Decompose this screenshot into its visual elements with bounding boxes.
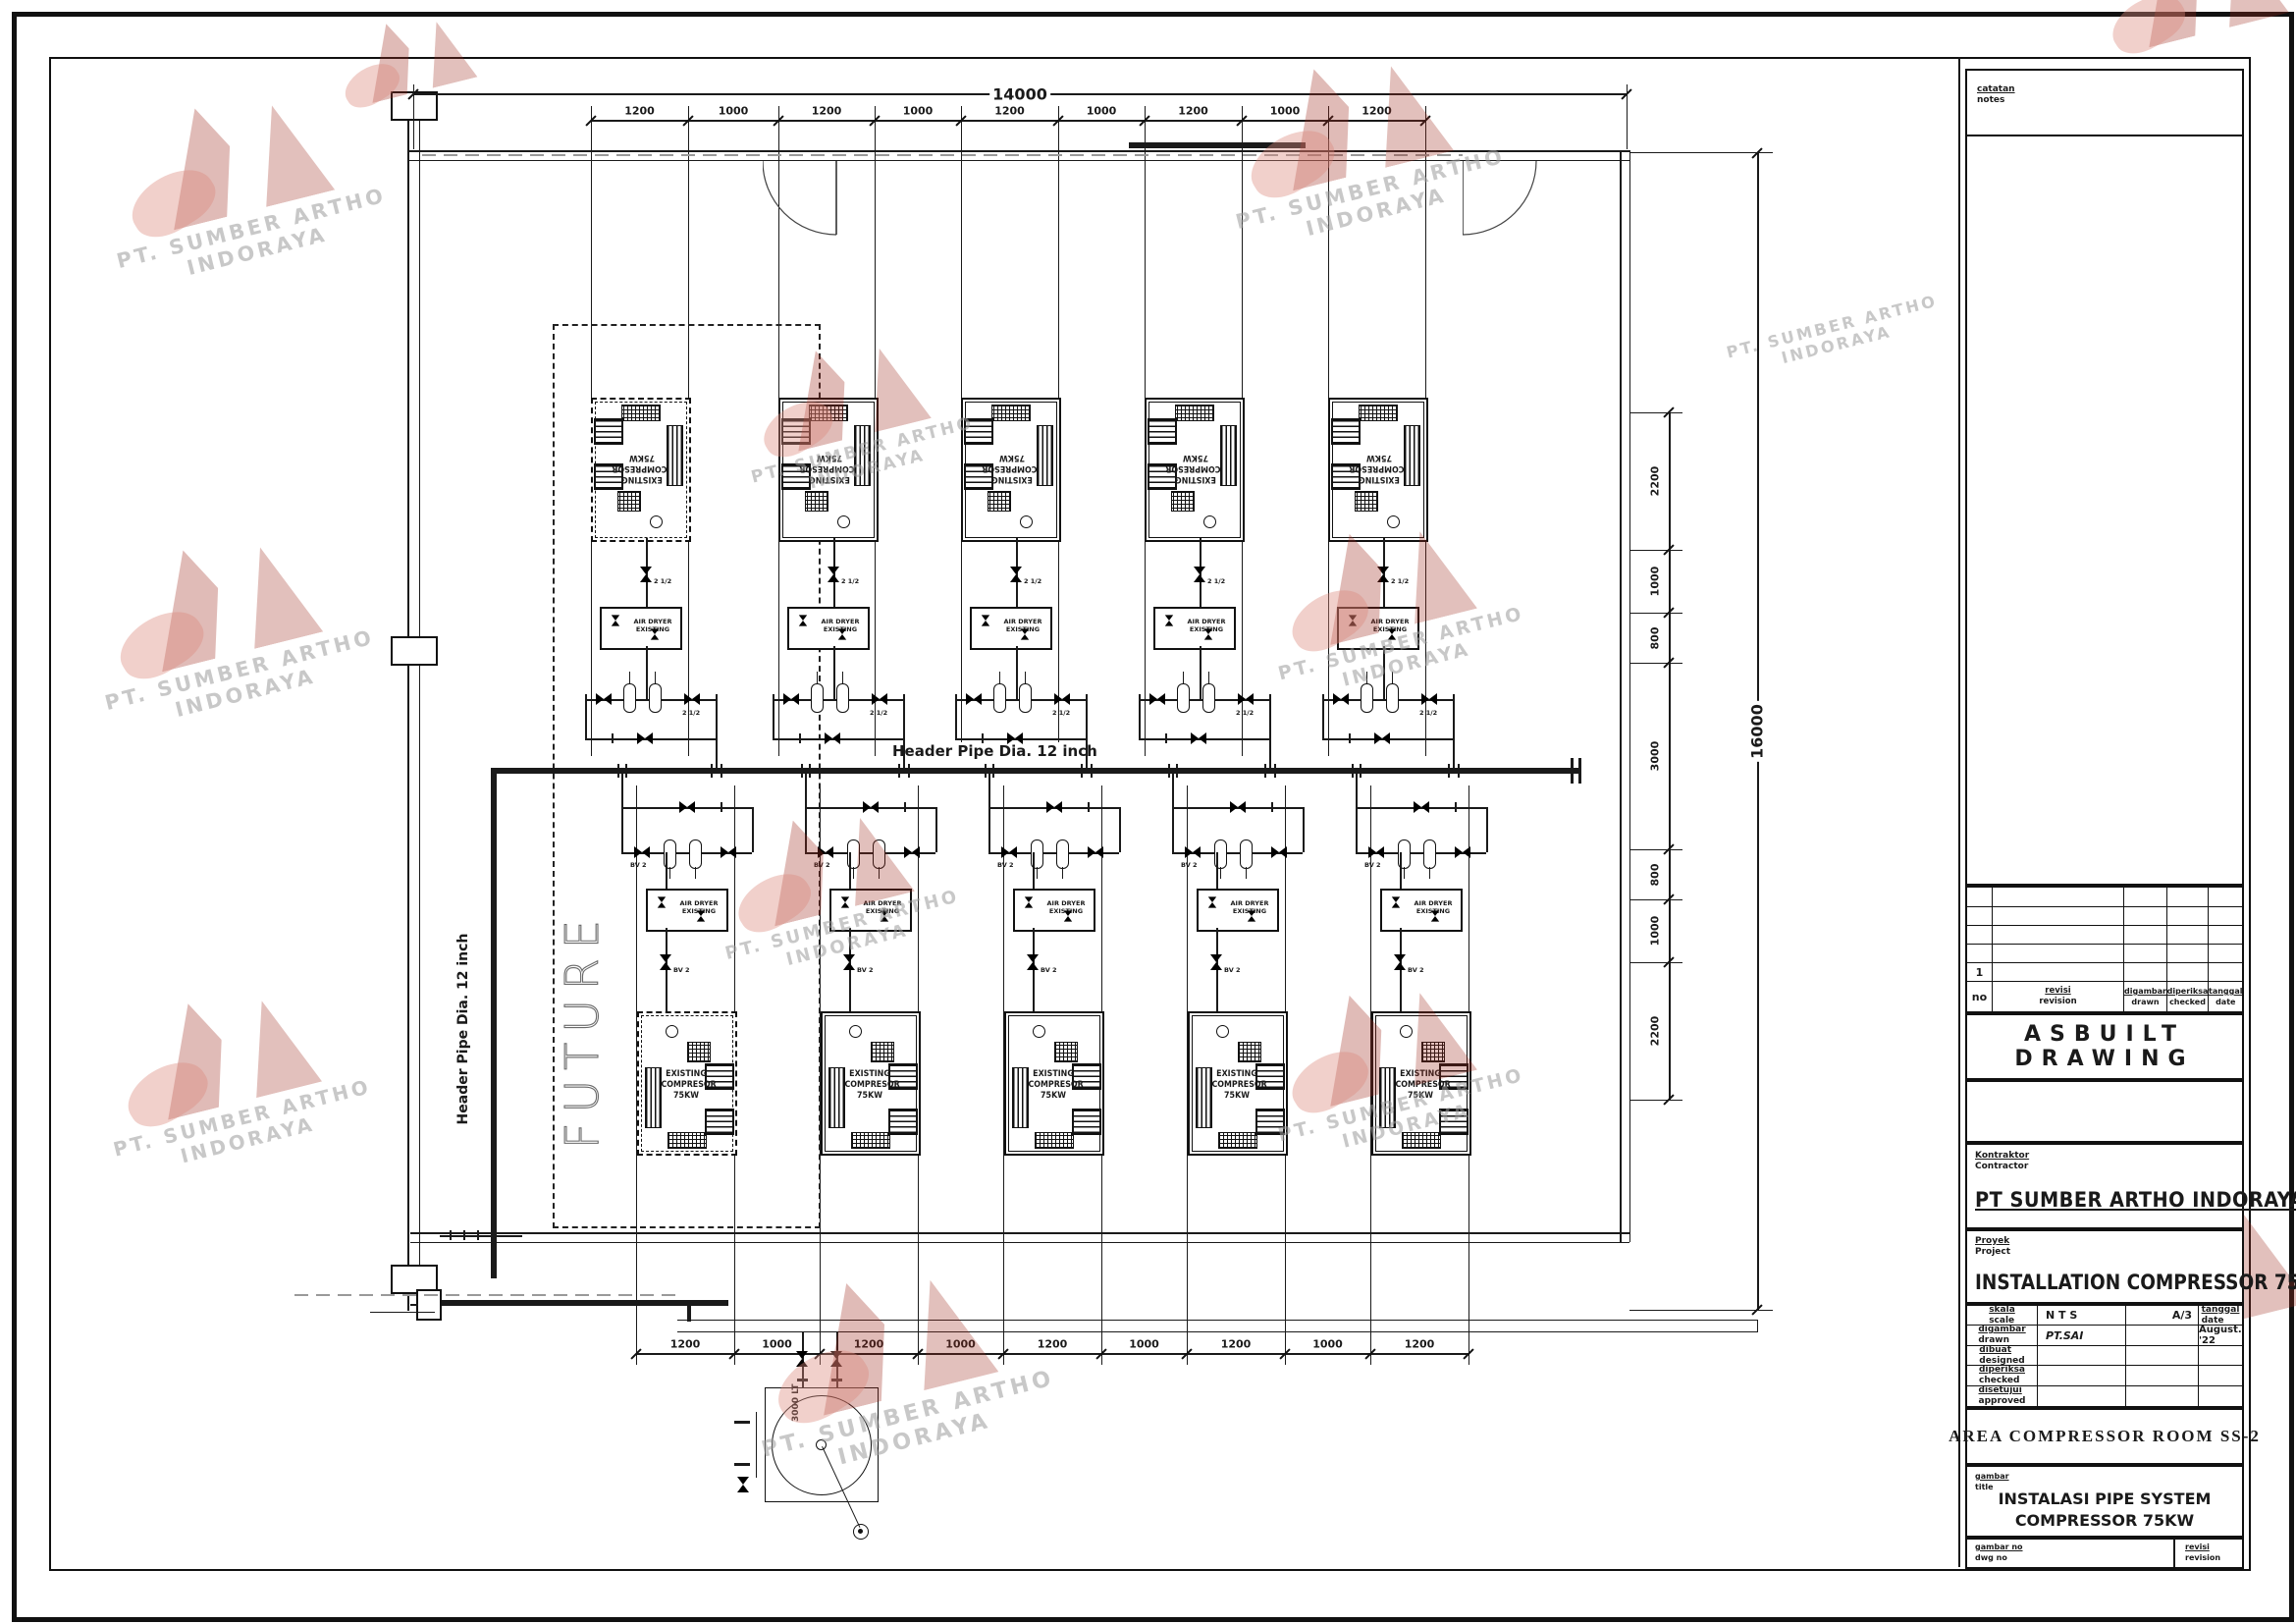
compressor-label: EXISTINGCOMPRESOR75KW — [1354, 452, 1404, 484]
valve-icon — [1238, 693, 1254, 705]
compressor-port-icon — [1020, 515, 1033, 528]
flange-tick — [721, 764, 722, 778]
watermark-text: INDORAYA — [62, 637, 429, 750]
pipe-line — [1183, 672, 1184, 683]
pipe-size-label: BV 2 — [1181, 861, 1198, 869]
flange-tick — [1091, 764, 1093, 778]
logo-shape — [395, 16, 478, 94]
filter-icon — [649, 683, 662, 713]
air-dryer-box: AIR DRYEREXISTING — [600, 607, 682, 650]
vent-hatch-icon — [1379, 1067, 1396, 1128]
compressor-inner-frame: EXISTINGCOMPRESOR75KW — [965, 402, 1057, 538]
valve-icon — [1208, 896, 1216, 907]
brand-logo-icon — [115, 520, 330, 681]
flange-tick — [612, 733, 614, 743]
air-dryer-box: AIR DRYEREXISTING — [787, 607, 870, 650]
watermark-logo: PT. SUMBER ARTHOINDORAYA — [1688, 283, 1980, 390]
wall-line — [410, 1232, 1629, 1234]
valve-icon — [660, 954, 671, 970]
filter-icon — [1202, 683, 1215, 713]
valve-icon — [1271, 846, 1287, 858]
overall-height-dim: 16000 — [1748, 701, 1767, 762]
pipe-line — [1062, 867, 1063, 879]
valve-icon — [1210, 954, 1222, 970]
flange-tick — [799, 733, 801, 743]
valve-icon — [841, 896, 849, 907]
info-grid-box: skalascale N T S A/3 tanggaldate digamba… — [1965, 1304, 2244, 1408]
watermark-text: INDORAYA — [74, 195, 441, 308]
compressor-port-icon — [837, 515, 850, 528]
pipe-line — [805, 807, 807, 852]
pipe-size-label: 2 1/2 — [1052, 709, 1070, 717]
pipe-line — [752, 807, 754, 852]
pipe-line — [1220, 867, 1221, 879]
vent-hatch-icon — [805, 491, 828, 512]
contractor-box: Kontraktor Contractor PT SUMBER ARTHO IN… — [1965, 1143, 2244, 1229]
pipe-line — [1119, 807, 1121, 852]
dim-label: 1200 — [991, 105, 1028, 118]
valve-icon — [783, 693, 799, 705]
vent-hatch-icon — [687, 1042, 711, 1062]
flange-tick — [721, 802, 722, 812]
flange-tick — [908, 764, 910, 778]
flange-tick — [625, 764, 627, 778]
pipe-size-label: BV 2 — [1408, 966, 1424, 974]
pipe-line — [621, 774, 623, 807]
dim-ext — [1629, 663, 1682, 664]
filter-icon — [993, 683, 1006, 713]
pipe-line — [1400, 928, 1402, 1016]
compressor-unit: EXISTINGCOMPRESOR75KW — [1004, 1011, 1104, 1156]
pipe-line — [669, 867, 670, 879]
dim-label: 1200 — [851, 1338, 887, 1351]
pipe-line — [1246, 867, 1247, 879]
watermark-text: INDORAYA — [73, 1087, 424, 1195]
louver-icon — [964, 418, 993, 445]
pipe-size-label: BV 2 — [1224, 966, 1241, 974]
compressor-inner-frame: EXISTINGCOMPRESOR75KW — [825, 1015, 917, 1152]
filter-icon — [1240, 839, 1253, 869]
pipe-line — [1025, 672, 1026, 683]
flange-tick — [1455, 802, 1457, 812]
flange-tick — [992, 764, 994, 778]
vent-hatch-icon — [1037, 425, 1053, 486]
pipe-line — [1086, 738, 1088, 770]
pipe-line — [1200, 646, 1201, 699]
logo-shape — [121, 156, 224, 248]
valve-icon — [658, 896, 666, 907]
louver-icon — [1148, 418, 1177, 445]
dim-line — [636, 1353, 1468, 1355]
dim-label: 1200 — [1035, 1338, 1071, 1351]
flange-tick — [1081, 764, 1083, 778]
valve-icon — [904, 846, 920, 858]
air-dryer-box: AIR DRYEREXISTING — [1337, 607, 1419, 650]
pipe-channel — [677, 1320, 1757, 1321]
vent-hatch-icon — [871, 1042, 894, 1062]
valve-icon — [596, 693, 612, 705]
pipe-line — [833, 646, 835, 699]
logo-shape — [1282, 1039, 1376, 1123]
air-dryer-box: AIR DRYEREXISTING — [1197, 889, 1279, 932]
logo-shape — [134, 532, 283, 672]
revision-cell-label: revisi revision — [2185, 1542, 2220, 1563]
pipe-line — [1269, 738, 1271, 770]
asbuilt-box: ASBUILT DRAWING — [1965, 1013, 2244, 1080]
vent-hatch-icon — [854, 425, 871, 486]
flange-tick — [1458, 764, 1460, 778]
valve-icon — [1421, 693, 1437, 705]
pipe-size-label: 2 1/2 — [841, 577, 859, 585]
flange-tick — [809, 764, 811, 778]
pipe-line — [1216, 852, 1218, 889]
filter-icon — [1177, 683, 1190, 713]
pipe-line — [1016, 646, 1018, 699]
vertical-header-pipe — [491, 771, 497, 1278]
valve-icon — [1377, 567, 1389, 582]
wall-line — [407, 160, 1629, 161]
pipe-line — [410, 1304, 418, 1306]
asbuilt-title: ASBUILT DRAWING — [1967, 1022, 2242, 1071]
dim-label: 1000 — [1267, 105, 1304, 118]
valve-icon — [612, 615, 619, 625]
logo-shape — [146, 90, 294, 230]
dim-label: 1200 — [1359, 105, 1395, 118]
valve-icon — [881, 910, 888, 921]
pipe-line — [695, 867, 696, 879]
dim-ext — [1629, 412, 1682, 413]
valve-icon — [737, 1477, 749, 1492]
wall-line — [1620, 150, 1622, 1242]
air-dryer-box: AIR DRYEREXISTING — [970, 607, 1052, 650]
dim-label: 1000 — [759, 1338, 795, 1351]
valve-icon — [1021, 628, 1029, 639]
compressor-unit: EXISTINGCOMPRESOR75KW — [637, 1011, 737, 1156]
pipe-line — [1356, 774, 1358, 807]
pipe-line — [1429, 867, 1430, 879]
valve-icon — [1027, 954, 1039, 970]
compressor-unit: EXISTINGCOMPRESOR75KW — [591, 398, 691, 542]
flange-tick — [1271, 802, 1273, 812]
pipe-line — [988, 807, 990, 852]
dwg-no-label: gambar no dwg no — [1975, 1542, 2023, 1563]
valve-icon — [1349, 615, 1357, 625]
pipe-size-label: 2 1/2 — [870, 709, 887, 717]
project-name: INSTALLATION COMPRESSOR 75KW — [1975, 1271, 2296, 1294]
pipe-line — [687, 1306, 691, 1322]
dim-label: 3000 — [1649, 738, 1662, 775]
air-dryer-box: AIR DRYEREXISTING — [1013, 889, 1095, 932]
valve-icon — [843, 954, 855, 970]
pipe-size-label: BV 2 — [857, 966, 874, 974]
flange-tick — [1176, 764, 1178, 778]
project-label: Proyek Project — [1975, 1236, 2010, 1258]
pipe-line — [1392, 672, 1393, 683]
air-dryer-box: AIR DRYEREXISTING — [829, 889, 912, 932]
vent-hatch-icon — [667, 425, 683, 486]
valve-icon — [825, 732, 840, 744]
drain-symbol-icon — [858, 1529, 863, 1534]
dim-ext — [1629, 962, 1682, 963]
pipe-line — [1086, 699, 1088, 738]
louver-icon — [1331, 418, 1361, 445]
valve-icon — [1204, 628, 1212, 639]
flange-tick — [801, 764, 803, 778]
pipe-line — [1383, 646, 1385, 699]
compressor-label: EXISTINGCOMPRESOR75KW — [804, 452, 854, 484]
flange-tick — [734, 1421, 750, 1424]
vent-hatch-icon — [1012, 1067, 1029, 1128]
compressor-unit: EXISTINGCOMPRESOR75KW — [1328, 398, 1428, 542]
air-dryer-box: AIR DRYEREXISTING — [1153, 607, 1236, 650]
pipe-line — [1486, 807, 1488, 852]
valve-icon — [1185, 846, 1201, 858]
louver-icon — [888, 1109, 918, 1135]
valve-icon — [697, 910, 705, 921]
compressor-unit: EXISTINGCOMPRESOR75KW — [778, 398, 879, 542]
notes-box: catatan notes — [1965, 69, 2244, 886]
valve-icon — [1455, 846, 1470, 858]
rev-col-revision: revisirevision — [1993, 981, 2124, 1011]
pipe-line — [1453, 738, 1455, 770]
louver-icon — [1255, 1109, 1285, 1135]
compressor-label: EXISTINGCOMPRESOR75KW — [1170, 452, 1220, 484]
compressor-unit: EXISTINGCOMPRESOR75KW — [821, 1011, 921, 1156]
dim-label: 1200 — [621, 105, 658, 118]
vent-hatch-icon — [1238, 1042, 1261, 1062]
dim-ext — [413, 84, 414, 149]
compressor-inner-frame: EXISTINGCOMPRESOR75KW — [1148, 402, 1241, 538]
valve-icon — [1054, 693, 1070, 705]
pipe-line — [646, 646, 648, 699]
logo-shape — [2125, 0, 2254, 47]
filter-icon — [1423, 839, 1436, 869]
flange-tick — [1264, 764, 1266, 778]
watermark-logo: PT. SUMBER ARTHOINDORAYA — [39, 954, 423, 1195]
vertical-header-pipe-label: Header Pipe Dia. 12 inch — [455, 917, 471, 1141]
valve-icon — [1191, 732, 1206, 744]
pipe-line — [629, 672, 630, 683]
tank-nozzle — [756, 1412, 757, 1478]
pipe-line — [805, 774, 807, 807]
valve-icon — [872, 693, 887, 705]
pipe-channel — [677, 1331, 1757, 1332]
vent-hatch-icon — [991, 405, 1031, 421]
area-title: AREA COMPRESSOR ROOM SS-2 — [1949, 1427, 2261, 1446]
pipe-size-label: 2 1/2 — [1236, 709, 1254, 717]
filter-icon — [1019, 683, 1032, 713]
dim-label: 1000 — [1309, 1338, 1346, 1351]
logo-shape — [118, 1050, 217, 1138]
valve-icon — [651, 628, 659, 639]
rev-col-no: no — [1967, 981, 1993, 1011]
filter-icon — [873, 839, 885, 869]
pipe-line — [903, 699, 905, 738]
valve-icon — [637, 732, 653, 744]
logo-shape — [207, 95, 335, 215]
pipe-size-label: 2 1/2 — [1419, 709, 1437, 717]
pipe-line — [1033, 852, 1035, 889]
valve-icon — [1088, 846, 1103, 858]
rev-col-date: tanggaldate — [2209, 981, 2243, 1011]
pipe-line — [903, 738, 905, 770]
valve-icon — [1394, 954, 1406, 970]
valve-icon — [838, 628, 846, 639]
floor-plan: PT. SUMBER ARTHOINDORAYAPT. SUMBER ARTHO… — [0, 0, 2296, 1624]
header-pipe — [491, 768, 1578, 774]
vent-hatch-icon — [1402, 1132, 1441, 1149]
wall-line — [419, 103, 420, 1311]
tank-capacity-label: 3000 LT — [791, 1383, 801, 1422]
rev-col-checked: diperiksachecked — [2167, 981, 2209, 1011]
pipe-line — [1033, 928, 1035, 1016]
compressor-label: EXISTINGCOMPRESOR75KW — [844, 1069, 894, 1102]
flange-tick — [1274, 764, 1276, 778]
valve-icon — [966, 693, 982, 705]
flange-tick — [463, 1230, 465, 1240]
pipe-line — [716, 699, 718, 738]
valve-icon — [640, 567, 652, 582]
dim-label: 1000 — [942, 1338, 979, 1351]
dim-ext — [1629, 899, 1682, 900]
vent-hatch-icon — [828, 1067, 845, 1128]
vent-hatch-icon — [645, 1067, 662, 1128]
compressor-label: EXISTINGCOMPRESOR75KW — [616, 452, 667, 484]
flange-tick — [1360, 764, 1362, 778]
flange-tick — [1352, 764, 1354, 778]
valve-icon — [830, 1351, 842, 1367]
valve-icon — [863, 801, 879, 813]
project-box: Proyek Project INSTALLATION COMPRESSOR 7… — [1965, 1229, 2244, 1304]
pipe-line — [1172, 807, 1174, 852]
vent-hatch-icon — [1175, 405, 1214, 421]
vent-hatch-icon — [1035, 1132, 1074, 1149]
pipe-line — [1037, 867, 1038, 879]
pipe-line — [842, 672, 843, 683]
dim-ext — [1629, 152, 1773, 153]
pipe-line — [666, 928, 667, 1016]
dim-label: 800 — [1649, 623, 1662, 652]
logo-shape — [109, 598, 212, 690]
filter-icon — [689, 839, 702, 869]
compressor-port-icon — [849, 1025, 862, 1038]
vent-hatch-icon — [809, 405, 848, 421]
pipe-size-label: 2 1/2 — [682, 709, 700, 717]
flanged-stub — [440, 1235, 522, 1237]
watermark-text: PT. SUMBER ARTHO — [68, 172, 435, 285]
pipe-line — [817, 672, 818, 683]
valve-icon — [799, 615, 807, 625]
dim-label: 1000 — [716, 105, 752, 118]
compressor-inner-frame: EXISTINGCOMPRESOR75KW — [1375, 1015, 1468, 1152]
brand-logo-icon — [127, 79, 342, 240]
pipe-size-label: BV 2 — [997, 861, 1014, 869]
pipe-line — [1216, 928, 1218, 1016]
brand-logo-icon — [123, 975, 328, 1129]
louver-icon — [1072, 1109, 1101, 1135]
air-dryer-box: AIR DRYEREXISTING — [646, 889, 728, 932]
valve-icon — [1368, 846, 1384, 858]
vent-hatch-icon — [1421, 1042, 1445, 1062]
vent-hatch-icon — [1359, 405, 1398, 421]
air-dryer-box: AIR DRYEREXISTING — [1380, 889, 1463, 932]
pipe-size-label: BV 2 — [1364, 861, 1381, 869]
pipe-line — [1322, 699, 1324, 738]
dim-ext — [1629, 613, 1682, 614]
valve-icon — [1064, 910, 1072, 921]
area-box: AREA COMPRESSOR ROOM SS-2 — [1965, 1408, 2244, 1465]
flange-tick — [734, 1463, 750, 1466]
logo-shape — [200, 992, 322, 1107]
dim-ext — [1629, 1100, 1682, 1101]
empty-box — [1965, 1080, 2244, 1143]
louver-icon — [1439, 1109, 1468, 1135]
compressor-unit: EXISTINGCOMPRESOR75KW — [1145, 398, 1245, 542]
pipe-size-label: 2 1/2 — [1024, 577, 1041, 585]
compressor-unit: EXISTINGCOMPRESOR75KW — [1371, 1011, 1471, 1156]
watermark-text: PT. SUMBER ARTHO — [56, 614, 423, 727]
pipe-size-label: 2 1/2 — [1391, 577, 1409, 585]
compressor-inner-frame: EXISTINGCOMPRESOR75KW — [782, 402, 875, 538]
wall-line — [1629, 150, 1630, 1242]
info-grid: skalascale N T S A/3 tanggaldate digamba… — [1967, 1306, 2242, 1406]
pipe-line — [849, 852, 851, 889]
pipe-line — [666, 852, 667, 889]
logo-shape — [354, 12, 451, 103]
pipe-dashed — [422, 154, 1463, 156]
filter-icon — [1056, 839, 1069, 869]
pipe-line — [999, 672, 1000, 683]
existing-pipe — [1129, 142, 1306, 148]
compressor-inner-frame: EXISTINGCOMPRESOR75KW — [595, 402, 687, 538]
valve-icon — [1149, 693, 1165, 705]
pipe-size-label: BV 2 — [814, 861, 830, 869]
valve-icon — [634, 846, 650, 858]
dim-line — [591, 120, 1425, 122]
dim-ext — [1629, 550, 1682, 551]
valve-icon — [1001, 846, 1017, 858]
vent-hatch-icon — [1054, 1042, 1078, 1062]
vent-hatch-icon — [1171, 491, 1195, 512]
pipe-line — [585, 699, 587, 738]
dim-label: 2200 — [1649, 463, 1662, 500]
valve-icon — [1010, 567, 1022, 582]
flange-tick — [1448, 764, 1450, 778]
louver-icon — [705, 1109, 734, 1135]
flange-tick — [477, 1230, 479, 1240]
valve-icon — [1392, 896, 1400, 907]
valve-icon — [818, 846, 833, 858]
dim-line — [1669, 412, 1671, 1100]
dim-label: 1000 — [1649, 564, 1662, 600]
vent-hatch-icon — [621, 405, 661, 421]
logo-shape — [142, 987, 284, 1120]
valve-icon — [1374, 732, 1390, 744]
future-zone-label: FUTURE — [556, 923, 609, 1149]
door-swing-icon — [1463, 161, 1539, 238]
valve-icon — [796, 1351, 808, 1367]
compressor-port-icon — [650, 515, 663, 528]
wall-line — [407, 103, 409, 1311]
header-end-cap — [1578, 758, 1581, 784]
pipe-line — [935, 807, 937, 852]
vent-hatch-icon — [988, 491, 1011, 512]
pipe-line — [716, 738, 718, 770]
title-block-divider — [1958, 57, 1960, 1567]
valve-icon — [1431, 910, 1439, 921]
watermark-text: INDORAYA — [1693, 300, 1981, 389]
header-end-cap — [1571, 758, 1574, 784]
